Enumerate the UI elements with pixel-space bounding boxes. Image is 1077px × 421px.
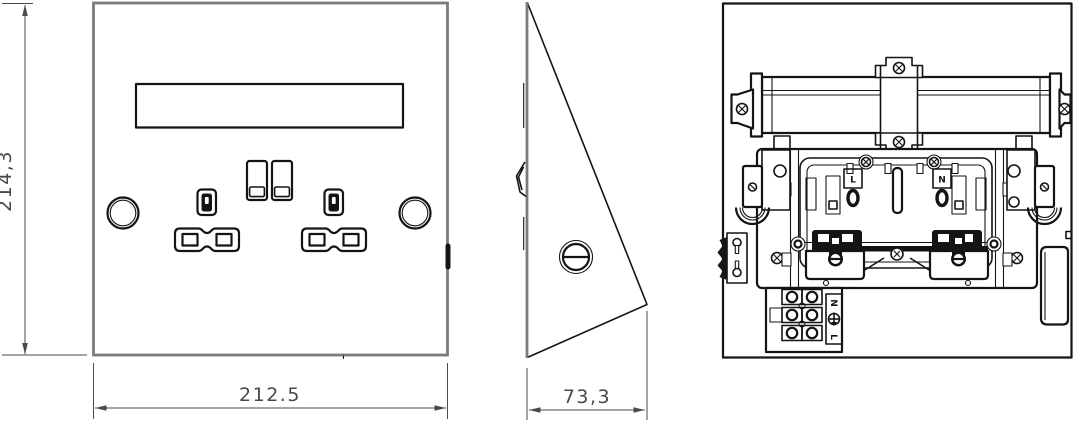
front-panel-outline [94,3,448,355]
side-profile [527,3,647,358]
mechanism-screw-right [927,155,941,169]
socket-mechanism: L N [791,155,1001,286]
live-terminal-label: L [850,176,856,186]
rail-clamp-screw-right [1059,104,1070,115]
earth-symbol-icon [829,313,840,326]
pivot-washer-left [791,237,805,251]
height-dimension: 214,3 [0,4,87,356]
side-clip [517,162,527,197]
pivot-washer-right [987,237,1001,251]
terminal-block: N L [766,288,842,352]
depth-dimension-label: 73,3 [563,386,611,408]
panel-clip-left [718,233,748,283]
rail-center-bracket [876,58,923,153]
terminal-label-l: L [828,334,838,340]
engineering-drawing-page: L N [0,0,1077,421]
width-dimension: 212.5 [94,363,448,419]
rail-clamp-screw-left [737,104,748,115]
engineering-drawing-canvas: L N [0,0,1077,421]
neutral-terminal-label: N [938,176,946,186]
arrowhead-down [22,343,28,355]
arrowhead-left [529,407,541,413]
arrowhead-up [22,5,28,17]
arrowhead-right [634,407,646,413]
rail-link-tab-left [774,136,790,149]
edge-latch-front [446,244,451,270]
rail-link-tab-right [1016,136,1032,149]
terminal-screw-right [951,232,966,267]
width-dimension-label: 212.5 [239,384,301,406]
side-view [517,2,648,358]
arrowhead-right [435,405,447,411]
height-dimension-label: 214,3 [0,150,16,212]
back-view: L N [718,4,1072,358]
terminal-label-n: N [828,299,838,307]
depth-dimension: 73,3 [527,311,647,420]
front-view [94,3,451,359]
arrowhead-left [95,405,107,411]
side-screw [560,241,593,274]
center-screw [891,248,903,260]
terminal-screw-left [828,232,843,267]
mechanism-screw-left [859,155,873,169]
